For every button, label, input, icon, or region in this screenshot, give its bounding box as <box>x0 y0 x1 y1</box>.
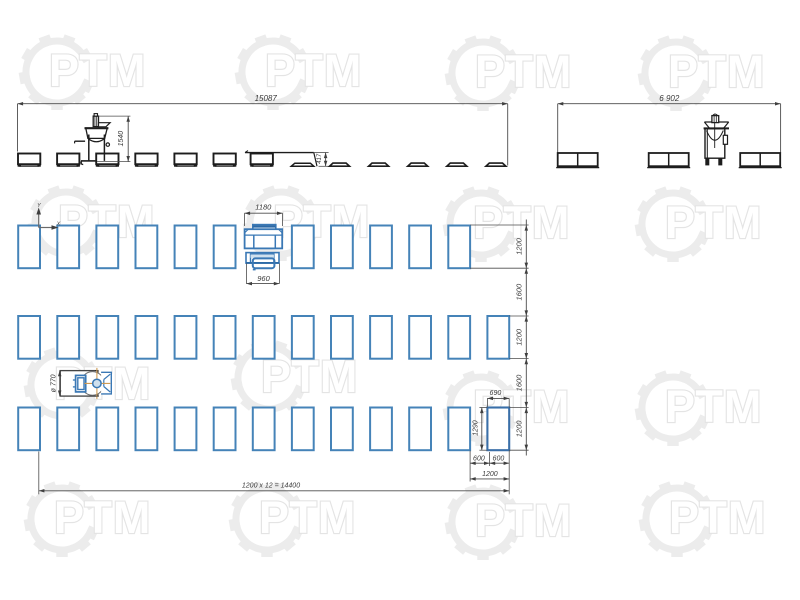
svg-text:1200: 1200 <box>515 328 524 346</box>
svg-text:1600: 1600 <box>515 283 524 301</box>
svg-text:1290: 1290 <box>472 420 479 436</box>
svg-text:1200: 1200 <box>515 420 524 438</box>
svg-text:690: 690 <box>490 390 502 397</box>
svg-text:Y: Y <box>37 203 41 209</box>
svg-text:6 902: 6 902 <box>659 94 680 103</box>
svg-text:960: 960 <box>257 274 270 283</box>
svg-text:1200: 1200 <box>515 237 524 255</box>
svg-text:1600: 1600 <box>515 374 524 392</box>
svg-text:1540: 1540 <box>118 131 125 147</box>
svg-text:1200 x 12 = 14400: 1200 x 12 = 14400 <box>242 483 300 490</box>
svg-text:1200: 1200 <box>482 471 498 478</box>
svg-text:600: 600 <box>493 455 505 462</box>
svg-text:417: 417 <box>317 153 323 164</box>
svg-text:ø 770: ø 770 <box>50 374 57 392</box>
svg-text:600: 600 <box>473 455 485 462</box>
svg-text:1180: 1180 <box>255 203 272 212</box>
svg-text:X: X <box>56 222 61 228</box>
svg-text:15087: 15087 <box>255 94 278 103</box>
